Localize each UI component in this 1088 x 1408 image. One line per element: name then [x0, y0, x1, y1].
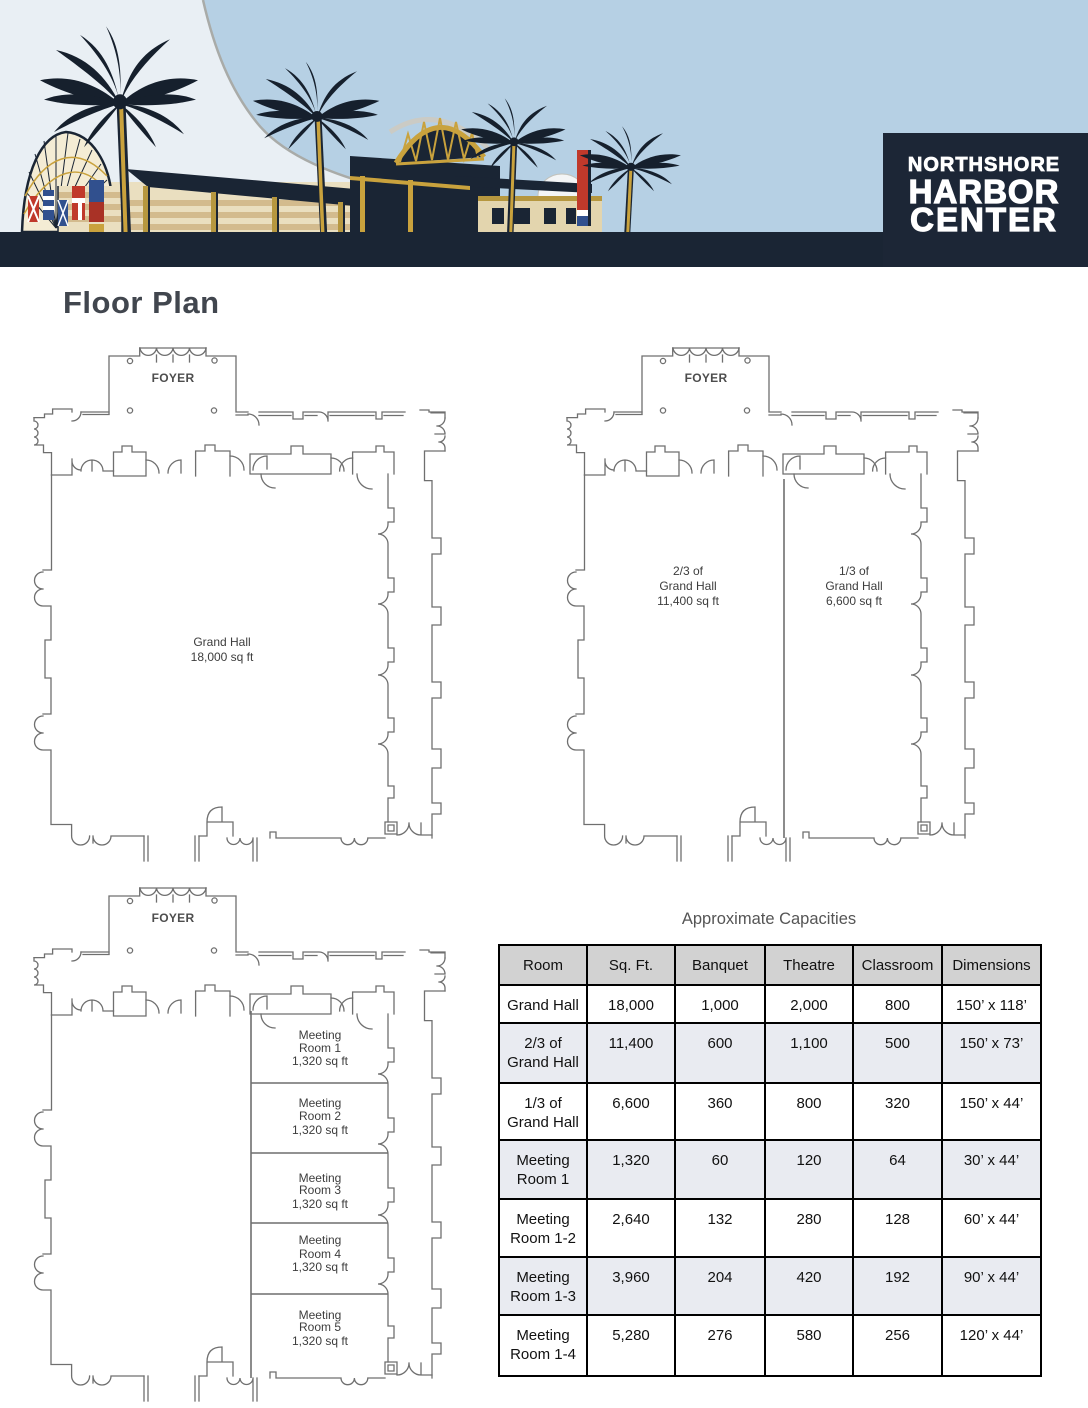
- svg-text:FOYER: FOYER: [685, 371, 728, 385]
- svg-text:1/3 of: 1/3 of: [839, 564, 870, 578]
- svg-text:Grand Hall: Grand Hall: [825, 579, 882, 593]
- svg-text:11,400 sq ft: 11,400 sq ft: [657, 594, 719, 608]
- svg-text:Room 5: Room 5: [299, 1320, 341, 1334]
- svg-text:FOYER: FOYER: [152, 371, 195, 385]
- svg-text:Room 2: Room 2: [299, 1109, 341, 1123]
- svg-text:FOYER: FOYER: [152, 911, 195, 925]
- svg-text:18,000 sq ft: 18,000 sq ft: [191, 650, 254, 664]
- svg-text:Meeting: Meeting: [299, 1233, 342, 1247]
- svg-text:Meeting: Meeting: [299, 1096, 342, 1110]
- svg-text:Room 4: Room 4: [299, 1247, 341, 1261]
- svg-text:1,320 sq ft: 1,320 sq ft: [292, 1054, 349, 1068]
- svg-text:Meeting: Meeting: [299, 1028, 342, 1042]
- svg-text:2/3 of: 2/3 of: [673, 564, 704, 578]
- svg-text:1,320 sq ft: 1,320 sq ft: [292, 1260, 349, 1274]
- svg-text:Room 3: Room 3: [299, 1183, 341, 1197]
- svg-text:Grand Hall: Grand Hall: [193, 635, 250, 649]
- svg-text:Room 1: Room 1: [299, 1041, 341, 1055]
- svg-text:CENTER: CENTER: [910, 201, 1058, 238]
- svg-text:Grand Hall: Grand Hall: [659, 579, 716, 593]
- svg-text:1,320 sq ft: 1,320 sq ft: [292, 1123, 349, 1137]
- svg-text:1,320 sq ft: 1,320 sq ft: [292, 1197, 349, 1211]
- svg-text:1,320 sq ft: 1,320 sq ft: [292, 1334, 349, 1348]
- svg-text:6,600 sq ft: 6,600 sq ft: [826, 594, 883, 608]
